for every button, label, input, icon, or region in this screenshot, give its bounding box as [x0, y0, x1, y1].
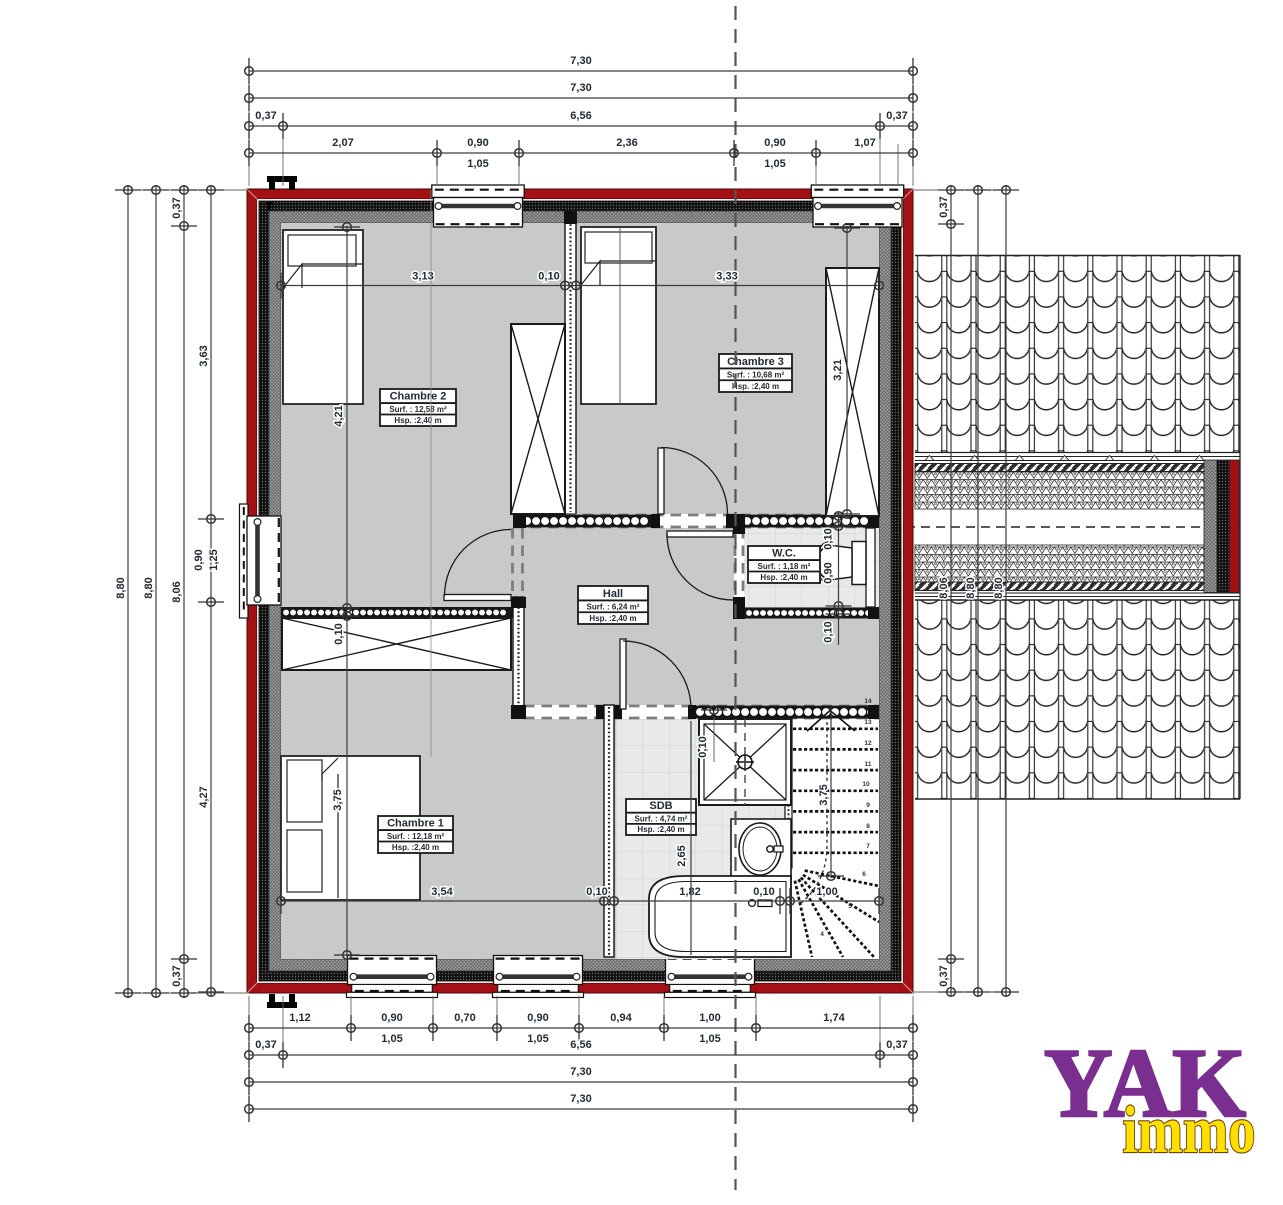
svg-text:Hsp. :2,40 m: Hsp. :2,40 m [589, 614, 636, 623]
svg-text:2,36: 2,36 [616, 137, 637, 149]
svg-text:1,74: 1,74 [823, 1012, 845, 1024]
svg-text:14: 14 [864, 698, 872, 705]
svg-text:1,82: 1,82 [679, 886, 700, 898]
svg-text:Hsp. :2,40 m: Hsp. :2,40 m [392, 843, 439, 852]
svg-text:Surf. : 4,74 m²: Surf. : 4,74 m² [635, 814, 688, 823]
svg-text:1,05: 1,05 [527, 1033, 548, 1045]
svg-text:4,21: 4,21 [333, 405, 345, 426]
svg-text:0,37: 0,37 [255, 110, 276, 122]
svg-text:0,90: 0,90 [381, 1012, 402, 1024]
svg-text:0,10: 0,10 [333, 623, 345, 644]
svg-text:1,00: 1,00 [816, 886, 837, 898]
svg-text:0,90: 0,90 [467, 137, 488, 149]
svg-text:7,30: 7,30 [570, 1093, 591, 1105]
svg-text:13: 13 [864, 719, 872, 726]
svg-text:8,80: 8,80 [143, 577, 155, 598]
svg-text:0,37: 0,37 [171, 965, 183, 986]
svg-text:4,27: 4,27 [198, 786, 210, 807]
svg-text:8,80: 8,80 [993, 577, 1005, 598]
svg-text:Surf. : 12,18 m²: Surf. : 12,18 m² [387, 832, 445, 841]
svg-text:Surf. : 1,18 m²: Surf. : 1,18 m² [758, 562, 811, 571]
svg-text:10: 10 [862, 781, 870, 788]
svg-text:0,37: 0,37 [886, 110, 907, 122]
svg-text:1,05: 1,05 [381, 1033, 402, 1045]
svg-text:3,21: 3,21 [832, 359, 844, 380]
svg-text:7,30: 7,30 [570, 1066, 591, 1078]
svg-text:4: 4 [820, 931, 824, 938]
svg-text:6,56: 6,56 [570, 1039, 591, 1051]
svg-text:8,06: 8,06 [938, 577, 950, 598]
svg-text:11: 11 [865, 761, 872, 768]
svg-text:0,37: 0,37 [171, 197, 183, 218]
svg-text:12: 12 [864, 740, 872, 747]
svg-text:0,10: 0,10 [753, 886, 774, 898]
svg-text:0,94: 0,94 [610, 1012, 632, 1024]
svg-text:2,65: 2,65 [676, 845, 688, 866]
svg-text:0,10: 0,10 [586, 886, 607, 898]
svg-text:0,37: 0,37 [255, 1039, 276, 1051]
svg-text:8,80: 8,80 [115, 577, 127, 598]
svg-text:7: 7 [866, 843, 870, 850]
svg-text:0,10: 0,10 [823, 621, 835, 642]
svg-text:9: 9 [866, 802, 870, 809]
svg-text:SDB: SDB [649, 800, 672, 812]
svg-text:3,54: 3,54 [431, 886, 453, 898]
svg-text:Hsp. :2,40 m: Hsp. :2,40 m [760, 573, 807, 582]
svg-text:3,13: 3,13 [412, 271, 433, 283]
svg-text:0,70: 0,70 [454, 1012, 475, 1024]
svg-text:8: 8 [866, 823, 870, 830]
svg-text:Hsp. :2,40 m: Hsp. :2,40 m [732, 382, 779, 391]
svg-text:1,05: 1,05 [764, 158, 785, 170]
svg-text:Chambre 1: Chambre 1 [387, 818, 444, 830]
svg-text:3,75: 3,75 [818, 784, 830, 805]
svg-text:0,90: 0,90 [527, 1012, 548, 1024]
svg-text:0,10: 0,10 [538, 271, 559, 283]
svg-text:Chambre 2: Chambre 2 [390, 391, 447, 403]
svg-text:0,10: 0,10 [697, 736, 709, 757]
svg-text:0,90: 0,90 [193, 549, 205, 570]
svg-text:3,33: 3,33 [716, 271, 737, 283]
svg-text:0,90: 0,90 [764, 137, 785, 149]
svg-text:7,30: 7,30 [570, 82, 591, 94]
svg-text:W.C.: W.C. [772, 548, 796, 560]
svg-text:Surf. : 6,24 m²: Surf. : 6,24 m² [587, 603, 640, 612]
svg-text:Surf. : 12,58 m²: Surf. : 12,58 m² [389, 405, 447, 414]
svg-text:1,00: 1,00 [699, 1012, 720, 1024]
svg-text:0,37: 0,37 [938, 965, 950, 986]
svg-text:Hsp. :2,40 m: Hsp. :2,40 m [394, 416, 441, 425]
svg-text:immo: immo [1123, 1093, 1256, 1167]
svg-text:8,06: 8,06 [171, 581, 183, 602]
svg-text:3,63: 3,63 [198, 345, 210, 366]
svg-text:8,80: 8,80 [965, 577, 977, 598]
svg-text:0,37: 0,37 [938, 196, 950, 217]
svg-text:2,07: 2,07 [332, 137, 353, 149]
svg-text:6: 6 [862, 871, 866, 878]
svg-text:1,05: 1,05 [699, 1033, 720, 1045]
svg-text:5: 5 [848, 903, 852, 910]
svg-text:0,90: 0,90 [823, 562, 835, 583]
svg-text:0,10: 0,10 [823, 528, 835, 549]
svg-text:Hall: Hall [603, 588, 623, 600]
svg-text:6,56: 6,56 [570, 110, 591, 122]
svg-text:1,25: 1,25 [208, 549, 220, 570]
svg-text:7,30: 7,30 [570, 55, 591, 67]
svg-text:1,05: 1,05 [467, 158, 488, 170]
svg-text:Hsp. :2,40 m: Hsp. :2,40 m [637, 825, 684, 834]
svg-text:0,37: 0,37 [886, 1039, 907, 1051]
svg-text:3,75: 3,75 [332, 789, 344, 810]
svg-text:1,07: 1,07 [854, 137, 875, 149]
svg-text:1,12: 1,12 [289, 1012, 310, 1024]
